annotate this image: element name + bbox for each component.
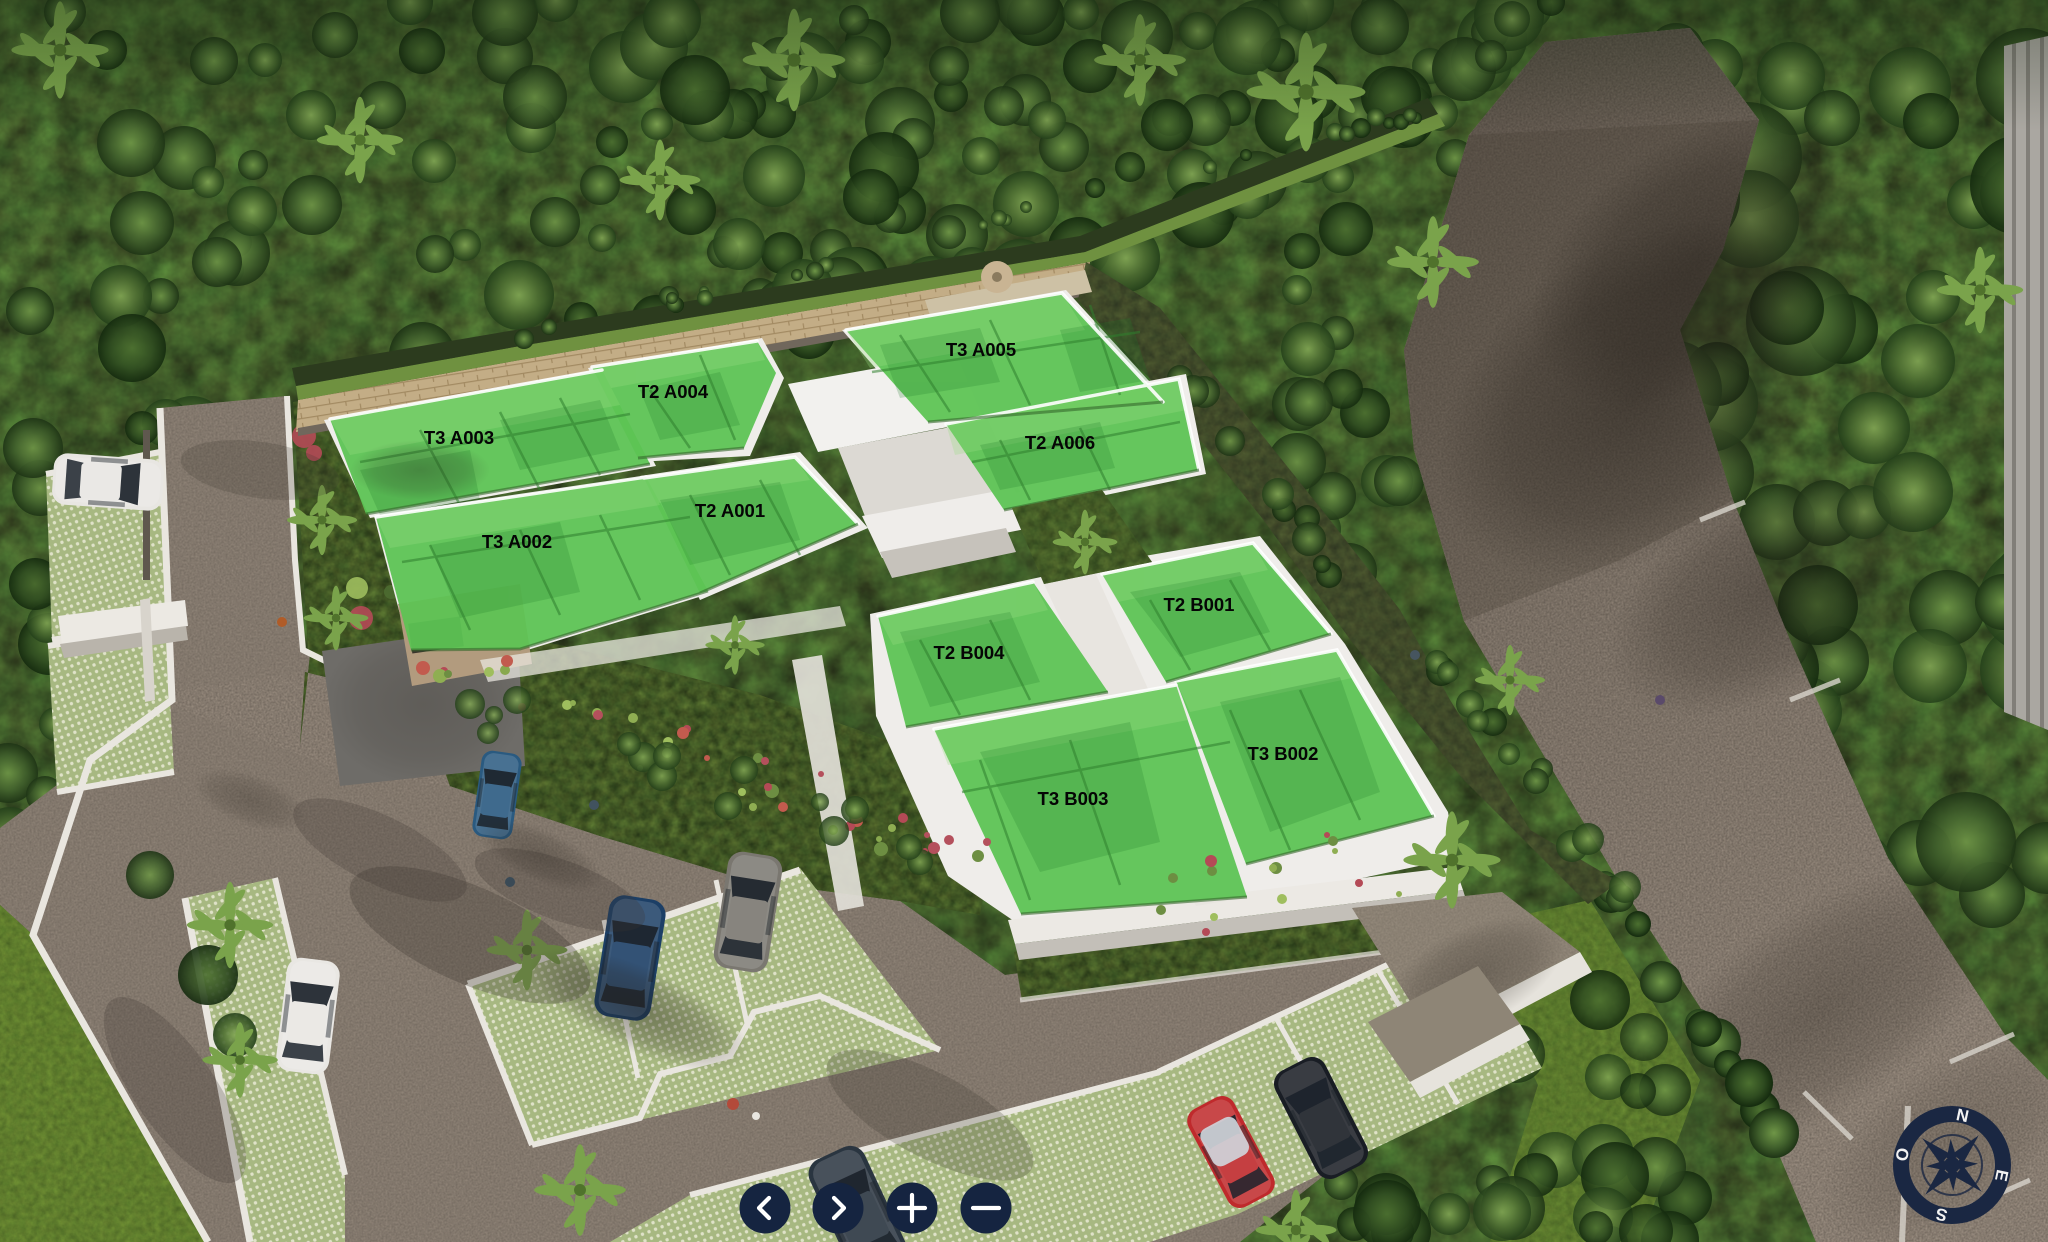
svg-text:T3 A005: T3 A005 <box>946 339 1016 360</box>
svg-text:T2 A006: T2 A006 <box>1025 432 1095 453</box>
svg-text:T3 B003: T3 B003 <box>1038 788 1109 809</box>
svg-text:T2 A001: T2 A001 <box>695 500 765 521</box>
svg-text:T2 A004: T2 A004 <box>638 381 709 402</box>
svg-text:T3 A002: T3 A002 <box>482 531 552 552</box>
svg-text:T2 B004: T2 B004 <box>934 642 1006 663</box>
svg-text:T2 B001: T2 B001 <box>1164 594 1235 615</box>
svg-text:T3 B002: T3 B002 <box>1248 743 1319 764</box>
